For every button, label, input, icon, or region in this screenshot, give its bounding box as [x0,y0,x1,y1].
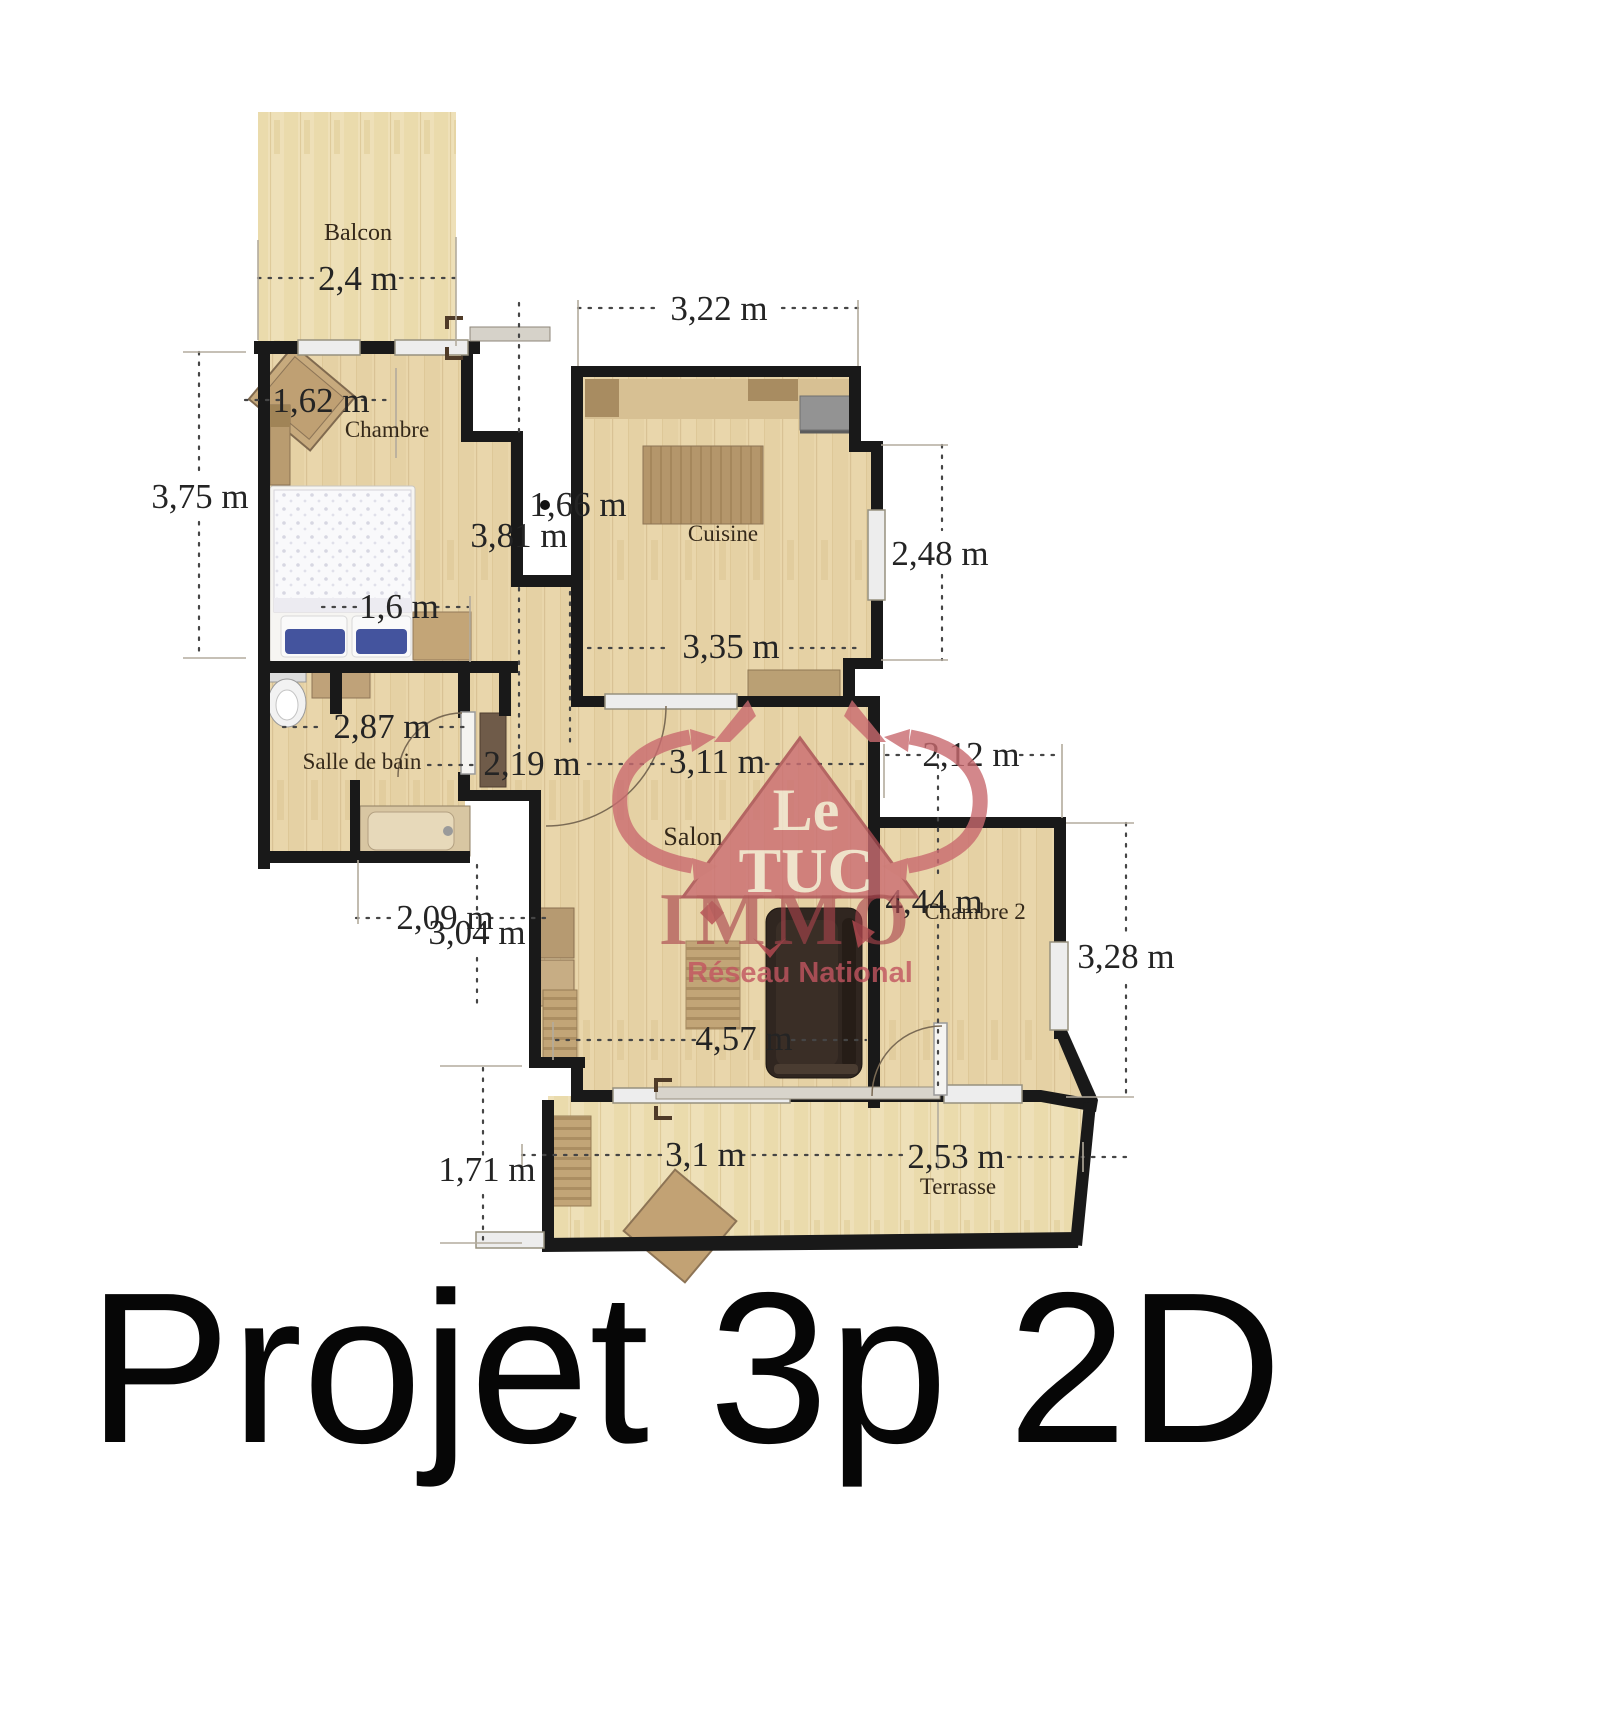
dim-chambre-height: 3,81 m [470,516,567,555]
dim-chambre-left: 3,75 m [151,477,248,516]
terrace-floor [548,1096,1092,1244]
page-title: Projet 3p 2D [87,1247,1282,1488]
dim-salon-left: 3,04 m [428,913,525,952]
logo-word-reseau: Réseau National [687,957,913,989]
pillow-right [356,629,407,654]
logo-word-le: Le [773,777,840,843]
room-label-chambre: Chambre [345,417,429,442]
dim-cuisine-bottom: 3,35 m [682,627,779,666]
room-label-cuisine: Cuisine [688,521,758,546]
dim-chambre-top: 1,62 m [272,381,369,420]
kitchen-table [643,446,763,524]
kitchen-window [868,510,885,600]
kitchen-cabinet [748,670,840,700]
floor-plan-page: Balcon Chambre Cuisine Salle de bain Sal… [0,0,1600,1722]
dim-hall-width: 2,19 m [483,744,580,783]
salon-chair [543,990,577,1058]
dim-salon-width: 4,57 m [695,1019,792,1058]
dim-terrasse-w2: 2,53 m [907,1137,1004,1176]
bedroom-window-2 [395,340,468,355]
bedroom-window [298,340,360,355]
dim-cuisine-right: 2,48 m [891,534,988,573]
room-label-salle-de-bain: Salle de bain [303,749,422,774]
room-label-balcon: Balcon [324,220,392,246]
pillow-left [285,629,345,654]
room-label-salon: Salon [663,822,722,851]
dim-terrasse-w1: 3,1 m [665,1135,745,1174]
dim-bed-width: 1,6 m [359,587,439,626]
dim-sdb-width: 2,87 m [333,707,430,746]
dim-terrasse-left: 1,71 m [438,1150,535,1189]
terrace-window-3 [476,1232,544,1248]
logo-word-immo: IMMO [659,879,917,961]
kitchen-salon-window [605,694,737,709]
bathtub [360,806,470,856]
floor-plan-canvas: Balcon Chambre Cuisine Salle de bain Sal… [0,0,1600,1722]
toilet [268,666,306,727]
terrace-chair [551,1116,591,1206]
dim-salon-top: 3,11 m [669,742,765,781]
dim-cuisine-top: 3,22 m [670,289,767,328]
bedroom2-window [1050,942,1068,1030]
bed [270,486,415,662]
dim-chambre2-right: 3,28 m [1077,937,1174,976]
dim-balcon-width: 2,4 m [318,259,398,298]
terrace-window-2 [944,1085,1022,1103]
salon-shelf [540,908,574,958]
room-label-terrasse: Terrasse [920,1174,996,1199]
